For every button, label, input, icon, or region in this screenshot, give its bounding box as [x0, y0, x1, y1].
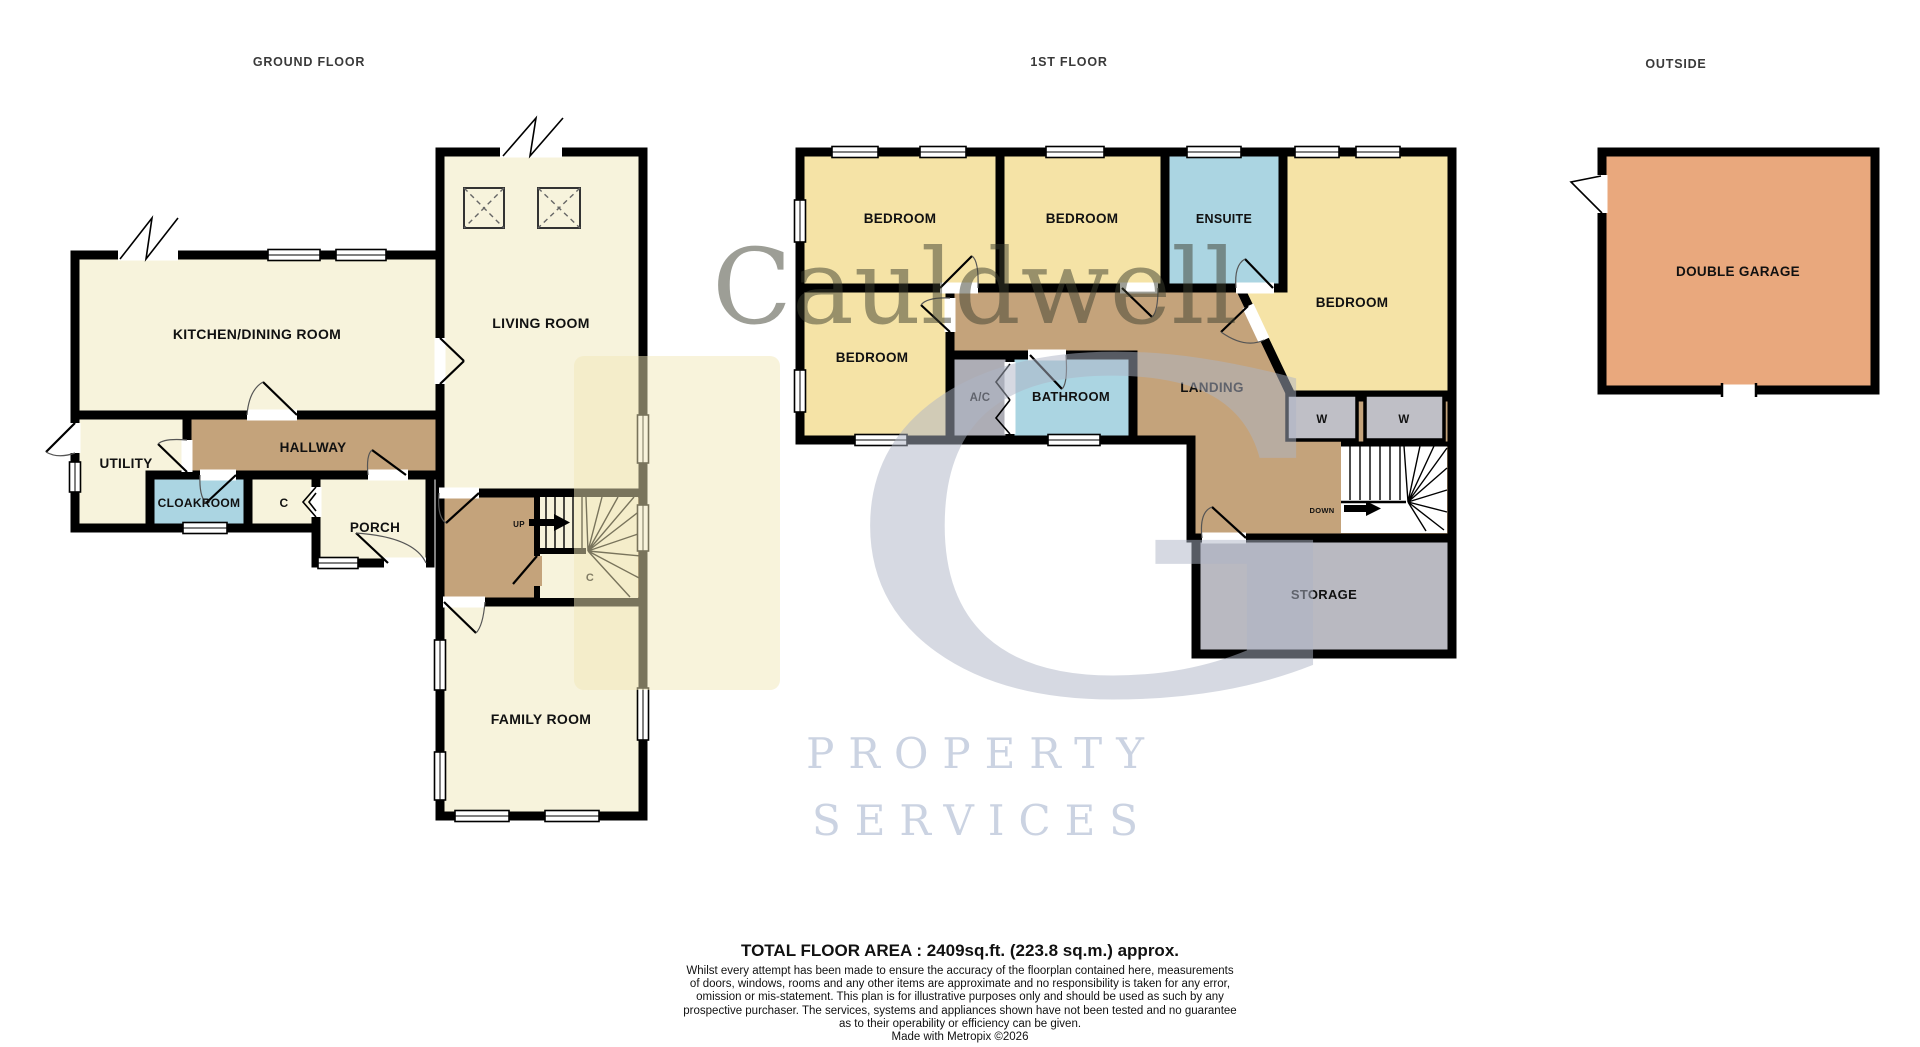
- floorplan-page: { "header": { "ground_floor": "GROUND FL…: [0, 0, 1920, 1047]
- label-cupboard: C: [280, 496, 289, 510]
- watermark-cream-block: [574, 356, 780, 690]
- watermark-services: SERVICES: [812, 796, 1152, 845]
- disclaimer-line-5: as to their operability or efficiency ca…: [0, 1018, 1920, 1031]
- disclaimer-line-1: Whilst every attempt has been made to en…: [0, 965, 1920, 978]
- watermark-property: PROPERTY: [806, 729, 1158, 778]
- label-family: FAMILY ROOM: [491, 711, 592, 727]
- watermark: G Cauldwell PROPERTY SERVICES: [574, 226, 1366, 845]
- label-cloakroom: CLOAKROOM: [158, 496, 241, 510]
- watermark-brand: Cauldwell: [712, 226, 1237, 348]
- section-headers: GROUND FLOOR 1ST FLOOR OUTSIDE: [253, 55, 1707, 71]
- disclaimer-line-3: omission or mis-statement. This plan is …: [0, 991, 1920, 1004]
- floorplan-canvas: KITCHEN/DINING ROOM LIVING ROOM UTILITY …: [0, 0, 1920, 1047]
- label-ensuite: ENSUITE: [1196, 212, 1252, 226]
- metropix-credit: Made with Metropix ©2026: [0, 1031, 1920, 1044]
- label-stairs-up: UP: [513, 520, 525, 529]
- label-bedroom1: BEDROOM: [864, 211, 937, 226]
- label-bedroom2: BEDROOM: [1046, 211, 1119, 226]
- footer: TOTAL FLOOR AREA : 2409sq.ft. (223.8 sq.…: [0, 941, 1920, 1044]
- label-living: LIVING ROOM: [492, 315, 589, 331]
- label-porch: PORCH: [350, 520, 400, 535]
- label-kitchen: KITCHEN/DINING ROOM: [173, 326, 341, 342]
- label-garage: DOUBLE GARAGE: [1676, 264, 1800, 279]
- label-hallway: HALLWAY: [280, 440, 347, 455]
- header-first-floor: 1ST FLOOR: [1030, 55, 1107, 69]
- header-outside: OUTSIDE: [1645, 57, 1706, 71]
- disclaimer-line-2: of doors, windows, rooms and any other i…: [0, 978, 1920, 991]
- total-floor-area: TOTAL FLOOR AREA : 2409sq.ft. (223.8 sq.…: [0, 941, 1920, 961]
- label-utility: UTILITY: [99, 456, 152, 471]
- header-ground-floor: GROUND FLOOR: [253, 55, 365, 69]
- disclaimer-line-4: prospective purchaser. The services, sys…: [0, 1005, 1920, 1018]
- label-wardrobe-2: W: [1398, 414, 1409, 426]
